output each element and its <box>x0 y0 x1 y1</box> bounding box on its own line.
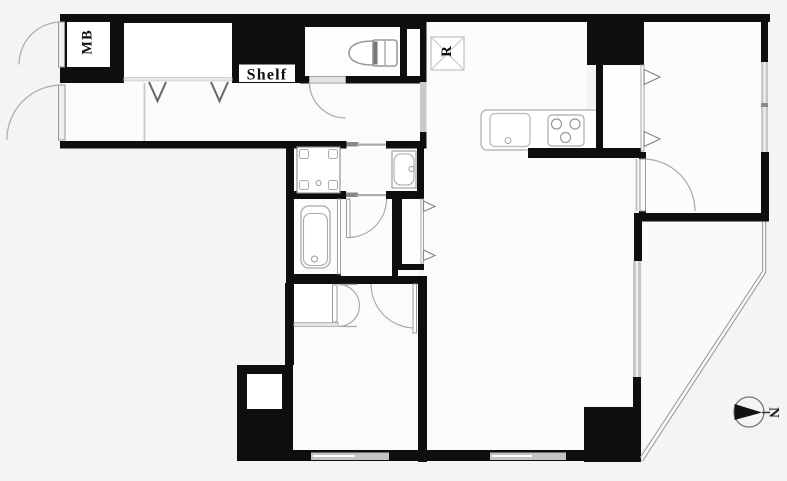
svg-text:MB: MB <box>80 29 96 54</box>
svg-text:R: R <box>439 46 455 57</box>
svg-text:Shelf: Shelf <box>247 67 288 84</box>
svg-text:N: N <box>766 407 782 418</box>
